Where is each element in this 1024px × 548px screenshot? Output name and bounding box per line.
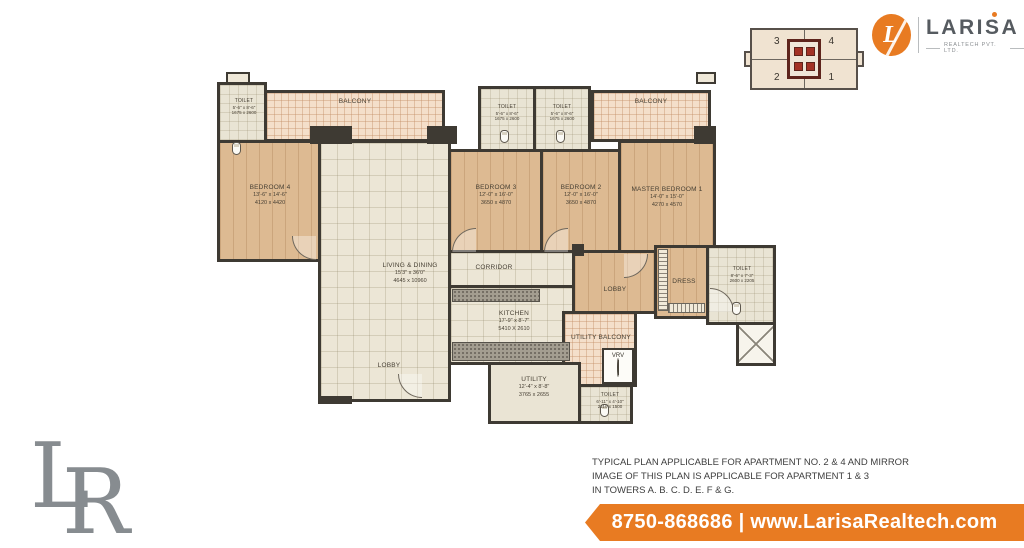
key-plan-unit-2: 2 [774, 72, 780, 83]
kitchen-counter [452, 289, 540, 302]
wall-column [694, 126, 716, 144]
service-shaft [736, 322, 776, 366]
logo-i-dot [992, 12, 997, 17]
toilet-fixture-icon [232, 142, 241, 155]
room-toilet-right [706, 245, 776, 325]
brand-logo: L LARISA REALTECH PVT. LTD. [872, 14, 1024, 56]
key-plan-unit-3: 3 [774, 36, 780, 47]
watermark-letter-r: R [62, 458, 130, 548]
room-label: DRESS [662, 278, 706, 286]
logo-divider [918, 17, 919, 53]
balcony-projection [696, 72, 716, 84]
room-label: BALCONY [608, 98, 694, 106]
room-label: UTILITY BALCONY [566, 334, 636, 342]
room-label: BALCONY [320, 98, 390, 106]
toilet-fixture-icon [556, 130, 565, 143]
room-label: BEDROOM 4 13'-6" x 14'-6" 4120 x 4420 [224, 184, 316, 207]
room-label: KITCHEN 17'-9" x 8'-7" 5410 X 2610 [482, 310, 546, 333]
contact-banner: 8750-868686 | www.LarisaRealtech.com [585, 504, 1024, 541]
logo-wordmark: LARISA [926, 16, 1024, 40]
key-plan-notch [744, 51, 752, 67]
room-label: LOBBY [362, 362, 416, 370]
contact-banner-text: 8750-868686 | www.LarisaRealtech.com [612, 511, 998, 534]
wall-column [318, 396, 352, 404]
kitchen-counter [452, 342, 570, 361]
room-label: TOILET 8'-6" x 7'-3" 2600 x 2205 [712, 266, 772, 284]
key-plan-unit-4: 4 [828, 36, 834, 47]
disclaimer-line: TYPICAL PLAN APPLICABLE FOR APARTMENT NO… [592, 456, 942, 470]
toilet-fixture-icon [732, 302, 741, 315]
logo-mark-icon: L [872, 14, 911, 56]
wall-column [427, 126, 457, 144]
room-label: BEDROOM 3 12'-0" x 16'-0" 3650 x 4870 [456, 184, 536, 207]
toilet-fixture-icon [500, 130, 509, 143]
disclaimer-line: IMAGE OF THIS PLAN IS APPLICABLE FOR APA… [592, 470, 942, 484]
room-label: LOBBY [590, 286, 640, 294]
disclaimer-text: TYPICAL PLAN APPLICABLE FOR APARTMENT NO… [592, 456, 942, 497]
key-plan-core [787, 39, 821, 79]
room-label: CORRIDOR [462, 264, 526, 272]
disclaimer-line: IN TOWERS A. B. C. D. E. F & G. [592, 484, 942, 498]
room-label: TOILET 5'-6" x 8'-6" 1675 x 2600 [222, 98, 266, 116]
key-plan: 3 4 2 1 [750, 28, 858, 90]
wall-column [572, 244, 584, 256]
room-label: TOILET 5'-6" x 8'-6" 1675 x 2600 [481, 104, 533, 122]
vrv-unit: VRV [602, 348, 634, 384]
key-plan-notch [856, 51, 864, 67]
wall-column [310, 126, 352, 144]
room-label: BEDROOM 2 12'-0" x 16'-0" 3650 x 4870 [548, 184, 614, 207]
room-label: TOILET 5'-6" x 8'-6" 1675 x 2600 [536, 104, 588, 122]
room-label: LIVING & DINING 15'3" x 36'0" 4645 x 109… [355, 262, 465, 285]
room-label: UTILITY 12'-4" x 8'-8" 3765 x 2655 [498, 376, 570, 399]
wardrobe-hatch [668, 303, 705, 313]
key-plan-unit-1: 1 [828, 72, 834, 83]
fan-icon [617, 358, 619, 377]
logo-subtitle: REALTECH PVT. LTD. [926, 42, 1024, 54]
floor-plan-poster: VRV TOILET 5'-6" x 8'-6" 1675 x 2600 BAL… [0, 0, 1024, 548]
room-label: TOILET 6'-11" x 4'-10" 2110 x 1500 [588, 392, 632, 410]
room-label: MASTER BEDROOM 1 14'-0" x 15'-0" 4270 x … [620, 186, 714, 209]
